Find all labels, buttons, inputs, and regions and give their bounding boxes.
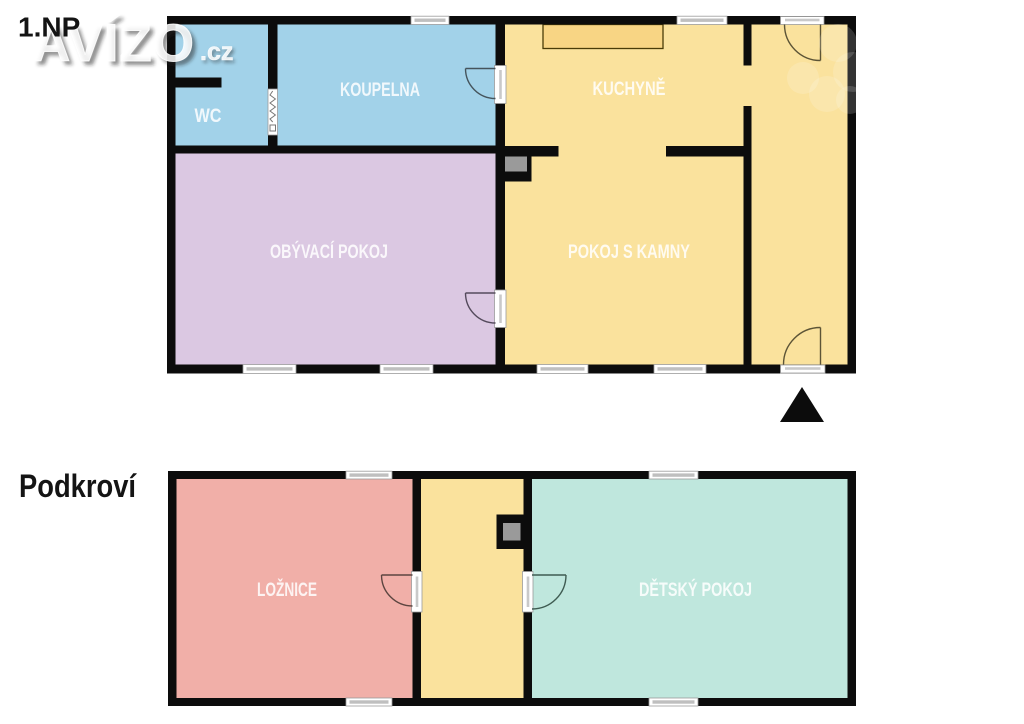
svg-text:WC: WC [195, 106, 222, 127]
svg-text:LOŽNICE: LOŽNICE [257, 579, 317, 601]
svg-text:POKOJ S KAMNY: POKOJ S KAMNY [568, 242, 690, 263]
svg-text:KOUPELNA: KOUPELNA [340, 80, 420, 101]
svg-text:Podkroví: Podkroví [19, 468, 137, 504]
svg-text:OBÝVACÍ POKOJ: OBÝVACÍ POKOJ [270, 241, 388, 263]
svg-text:1.NP: 1.NP [18, 12, 80, 43]
svg-text:KUCHYNĚ: KUCHYNĚ [593, 78, 666, 100]
svg-text:.cz: .cz [200, 38, 233, 66]
svg-text:DĚTSKÝ POKOJ: DĚTSKÝ POKOJ [639, 579, 752, 601]
